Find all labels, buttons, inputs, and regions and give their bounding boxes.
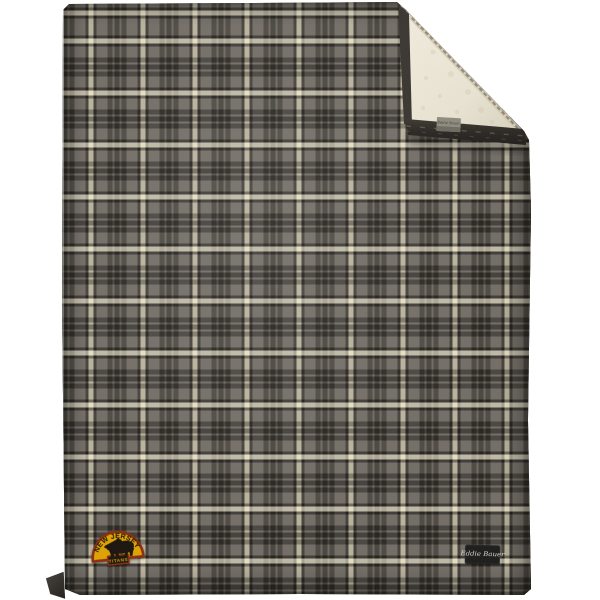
product-photo: Eddie Bauer TITANS NEW JERSEY Eddie Baue… — [0, 0, 600, 600]
fabric-noise — [0, 0, 600, 600]
back-corner-fold — [44, 570, 68, 600]
blanket: Eddie Bauer TITANS NEW JERSEY Eddie Baue… — [0, 0, 600, 600]
